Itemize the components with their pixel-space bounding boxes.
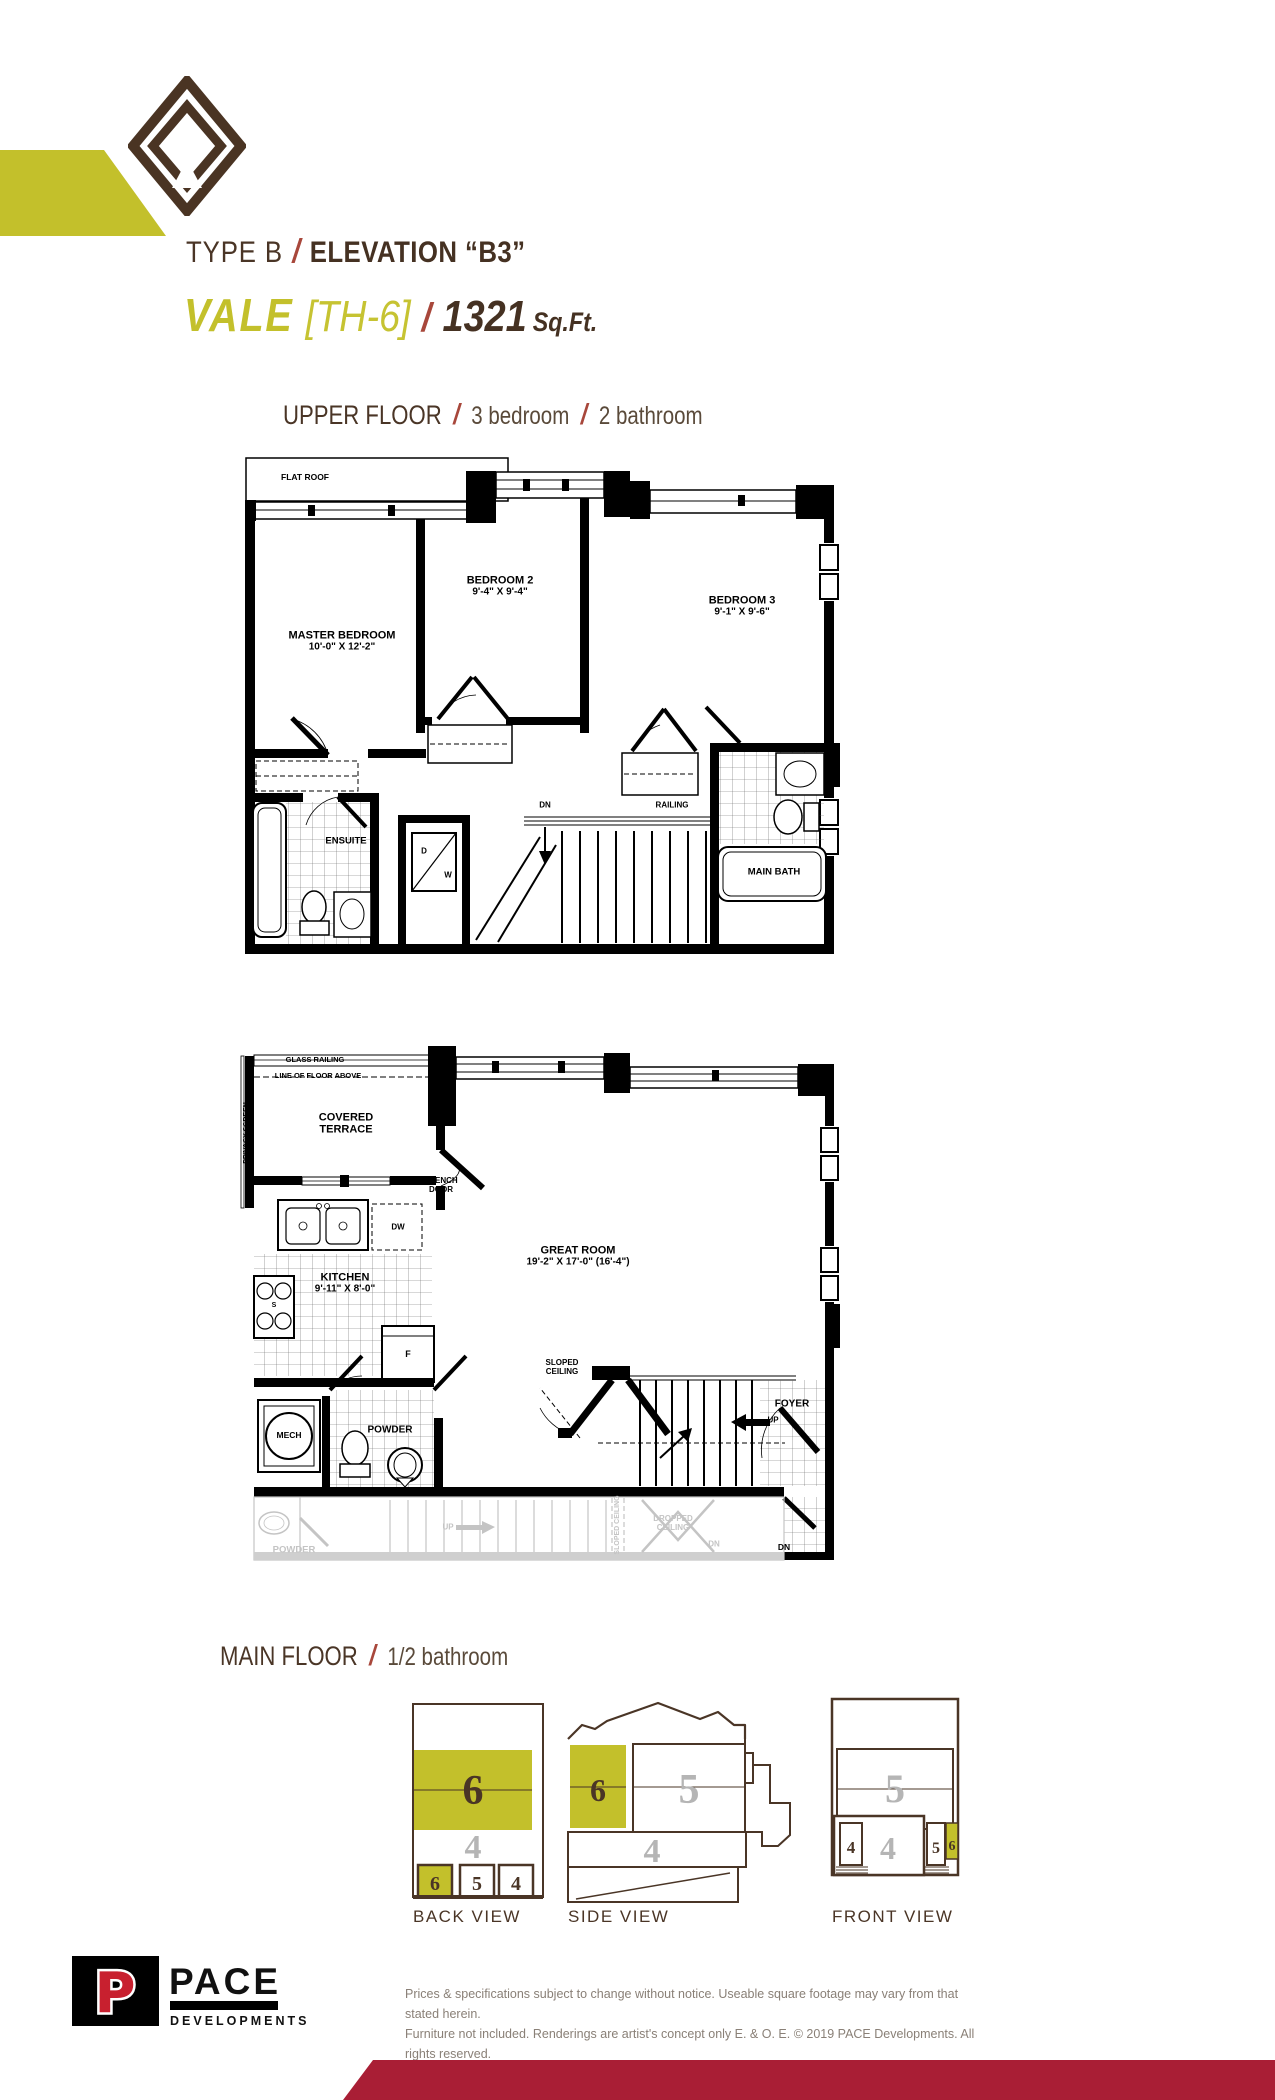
label-mech: MECH [276, 1431, 301, 1441]
side-view-label: SIDE VIEW [568, 1907, 669, 1926]
label-covered-terrace: COVERED TERRACE [302, 1112, 390, 1137]
back-view-label: BACK VIEW [413, 1907, 521, 1926]
label-privacy-screen: PRIVACY SCREEN [243, 1102, 251, 1164]
front-view-door-5: 5 [932, 1840, 940, 1857]
upper-floor-heading: UPPER FLOOR / 3 bedroom / 2 bathroom [283, 399, 703, 432]
disclaimer: Prices & specifications subject to chang… [405, 1984, 995, 2064]
side-view-unit-5: 5 [679, 1767, 700, 1813]
label-bedroom-3: BEDROOM 3 9'-1" X 9'-6" [709, 594, 776, 618]
label-ghost-dropped-ceiling: DROPPED CEILING [643, 1515, 703, 1533]
elevation-views: 6 4 6 5 4 BACK VIEW 6 5 4 SIDE VIEW [300, 1695, 975, 1930]
front-view-door-4: 4 [847, 1838, 856, 1857]
title-slash-2: / [422, 296, 432, 341]
front-view-label: FRONT VIEW [832, 1907, 953, 1926]
front-view-door-6: 6 [949, 1839, 956, 1854]
label-main-bath: MAIN BATH [748, 868, 801, 879]
label-ghost-up: UP [442, 1524, 453, 1533]
title-line-2: VALE [TH-6] / 1321 Sq.Ft. [184, 288, 597, 342]
pace-developments-logo: P PACE DEVELOPMENTS [72, 1954, 312, 2034]
side-view-unit-6: 6 [590, 1772, 606, 1808]
label-bedroom-2: BEDROOM 2 9'-4" X 9'-4" [467, 574, 534, 598]
label-up-foyer: UP [767, 1417, 778, 1426]
main-floor-heading: MAIN FLOOR / 1/2 bathroom [220, 1640, 508, 1673]
floorplan-sheet: TYPE B / ELEVATION “B3” VALE [TH-6] / 13… [0, 0, 1275, 2100]
label-french-door: FRENCH DOOR [417, 1177, 465, 1195]
title-line-1: TYPE B / ELEVATION “B3” [186, 232, 526, 270]
upper-floor-bedrooms: 3 bedroom [471, 402, 569, 431]
label-ghost-sloped-ceiling: SLOPED CEILING [614, 1495, 622, 1554]
back-view-sq-6: 6 [430, 1873, 440, 1895]
title-slash-1: / [292, 232, 300, 270]
back-view-sq-5: 5 [472, 1873, 482, 1895]
label-kitchen: KITCHEN 9'-11" X 8'-0" [315, 1271, 375, 1295]
elevation-label: ELEVATION “B3” [310, 236, 526, 270]
back-view-sq-4: 4 [511, 1873, 521, 1895]
logo-wordmark: PACE [169, 1961, 281, 2002]
label-dn-vestibule: DN [778, 1543, 790, 1553]
label-ghost-powder: POWDER [273, 1546, 316, 1557]
front-view-unit-5: 5 [885, 1766, 905, 1811]
heading-slash: / [581, 399, 588, 432]
main-floor-title: MAIN FLOOR [220, 1641, 358, 1672]
heading-slash: / [369, 1640, 376, 1673]
logo-subtitle: DEVELOPMENTS [170, 2014, 310, 2028]
label-foyer: FOYER [775, 1398, 809, 1409]
back-view-unit-6: 6 [463, 1768, 484, 1814]
model-name: VALE [184, 288, 293, 342]
label-line-of-floor-above: LINE OF FLOOR ABOVE [275, 1072, 361, 1080]
sqft-value: 1321 [443, 292, 527, 342]
side-view-unit-4: 4 [644, 1833, 661, 1870]
heading-slash: / [453, 399, 460, 432]
disclaimer-line-1: Prices & specifications subject to chang… [405, 1984, 995, 2024]
upper-floor-plan [240, 455, 840, 960]
label-stove: S [272, 1302, 277, 1310]
label-glass-railing: GLASS RAILING [286, 1056, 345, 1064]
red-footer-band [0, 2055, 1275, 2100]
label-flat-roof: FLAT ROOF [281, 473, 329, 483]
sqft-unit: Sq.Ft. [533, 307, 598, 338]
logo-p-glyph: P [94, 1961, 135, 2026]
label-powder: POWDER [368, 1424, 413, 1435]
label-railing: RAILING [656, 802, 689, 811]
upper-floor-bathrooms: 2 bathroom [599, 402, 703, 431]
label-master-bedroom: MASTER BEDROOM 10'-0" X 12'-2" [289, 629, 396, 653]
label-great-room: GREAT ROOM 19'-2" X 17'-0" (16'-4") [526, 1244, 629, 1268]
label-dryer: D [421, 848, 427, 857]
label-ghost-dn: DN [708, 1541, 720, 1550]
main-floor-plan [240, 1028, 840, 1563]
main-floor-bathrooms: 1/2 bathroom [387, 1643, 508, 1672]
label-dishwasher: DW [391, 1224, 404, 1233]
back-view-unit-4: 4 [465, 1829, 482, 1866]
front-view-unit-4: 4 [880, 1830, 896, 1866]
type-label: TYPE B [186, 236, 283, 270]
upper-floor-title: UPPER FLOOR [283, 400, 442, 431]
label-fridge: F [405, 1349, 411, 1359]
unit-number: [TH-6] [306, 292, 411, 342]
label-ensuite: ENSUITE [325, 837, 366, 848]
brand-diamond-logo [128, 76, 246, 216]
label-sloped-ceiling: SLOPED CEILING [536, 1359, 588, 1377]
logo-bar [170, 2001, 278, 2010]
label-dn-upper: DN [539, 802, 551, 811]
label-washer: W [444, 872, 452, 881]
